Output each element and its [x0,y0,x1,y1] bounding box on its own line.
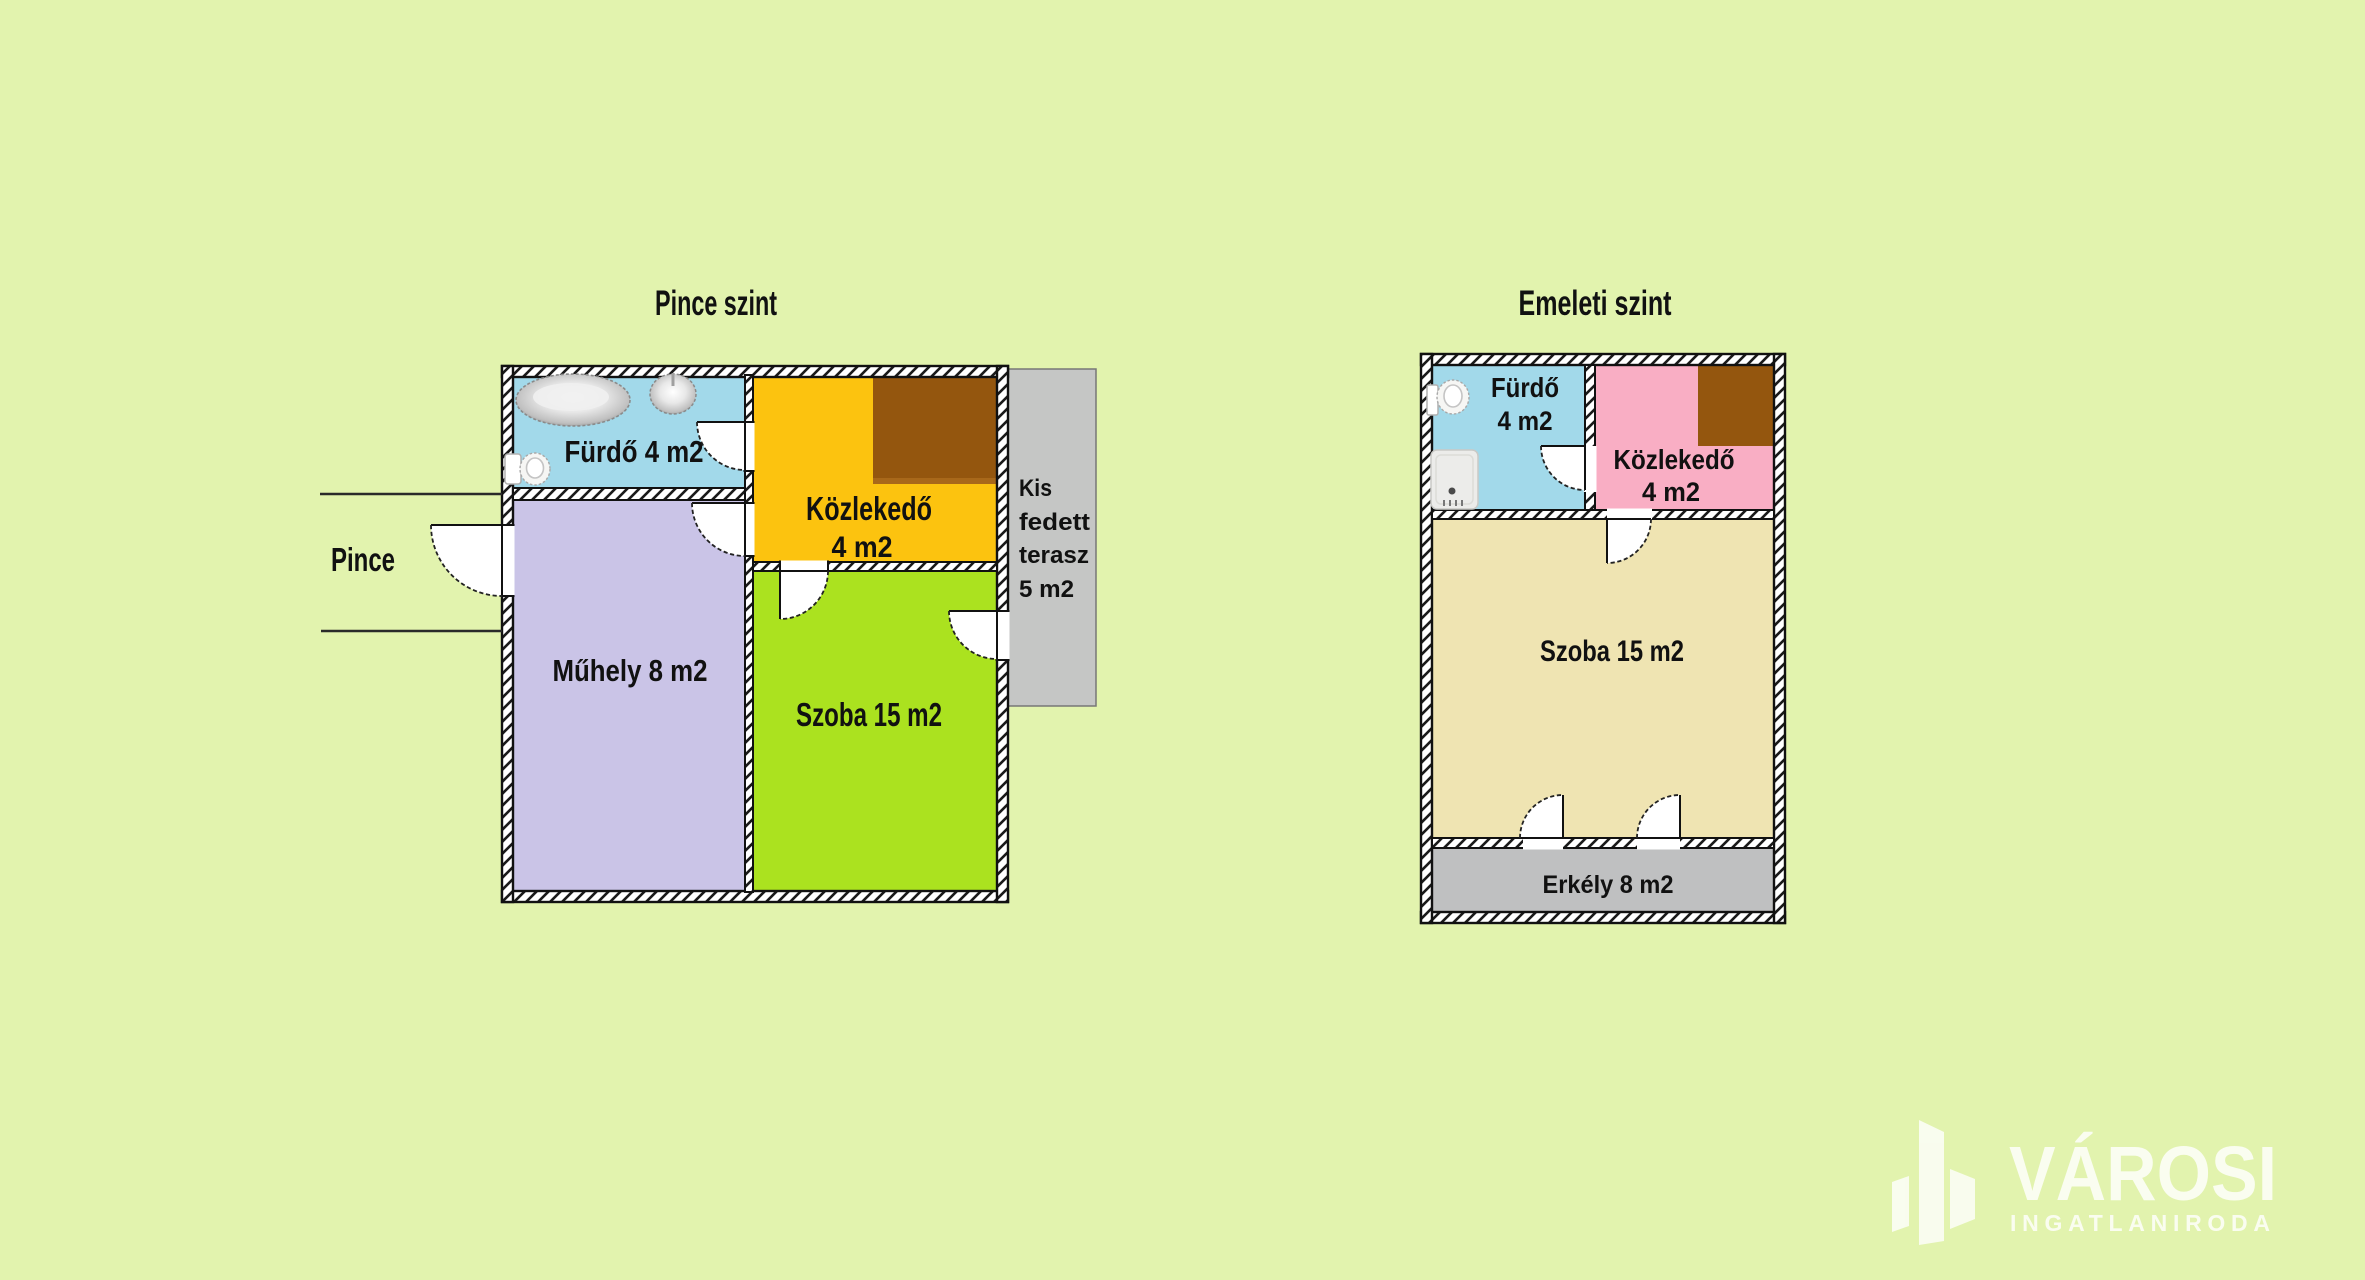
svg-text:terasz: terasz [1019,542,1089,569]
svg-text:VÁROSI: VÁROSI [2009,1130,2277,1217]
svg-text:4 m2: 4 m2 [832,531,893,564]
svg-text:Kis: Kis [1019,475,1052,502]
svg-text:5 m2: 5 m2 [1019,576,1074,603]
svg-text:INGATLANIRODA: INGATLANIRODA [2010,1210,2270,1236]
svg-text:Fürdő 4 m2: Fürdő 4 m2 [565,434,704,469]
svg-text:Közlekedő: Közlekedő [1614,444,1735,475]
svg-text:Pince szint: Pince szint [655,284,777,323]
svg-text:4 m2: 4 m2 [1498,406,1553,436]
svg-text:Szoba 15 m2: Szoba 15 m2 [1540,635,1684,668]
svg-text:Erkély 8 m2: Erkély 8 m2 [1543,871,1674,899]
svg-text:Műhely 8 m2: Műhely 8 m2 [553,653,708,688]
svg-text:4 m2: 4 m2 [1642,477,1700,507]
svg-text:fedett: fedett [1019,509,1090,536]
svg-text:Pince: Pince [331,541,395,578]
svg-text:Emeleti szint: Emeleti szint [1519,284,1672,323]
svg-text:Fürdő: Fürdő [1491,372,1559,403]
svg-text:Közlekedő: Közlekedő [806,490,932,527]
svg-text:Szoba 15 m2: Szoba 15 m2 [796,696,942,733]
